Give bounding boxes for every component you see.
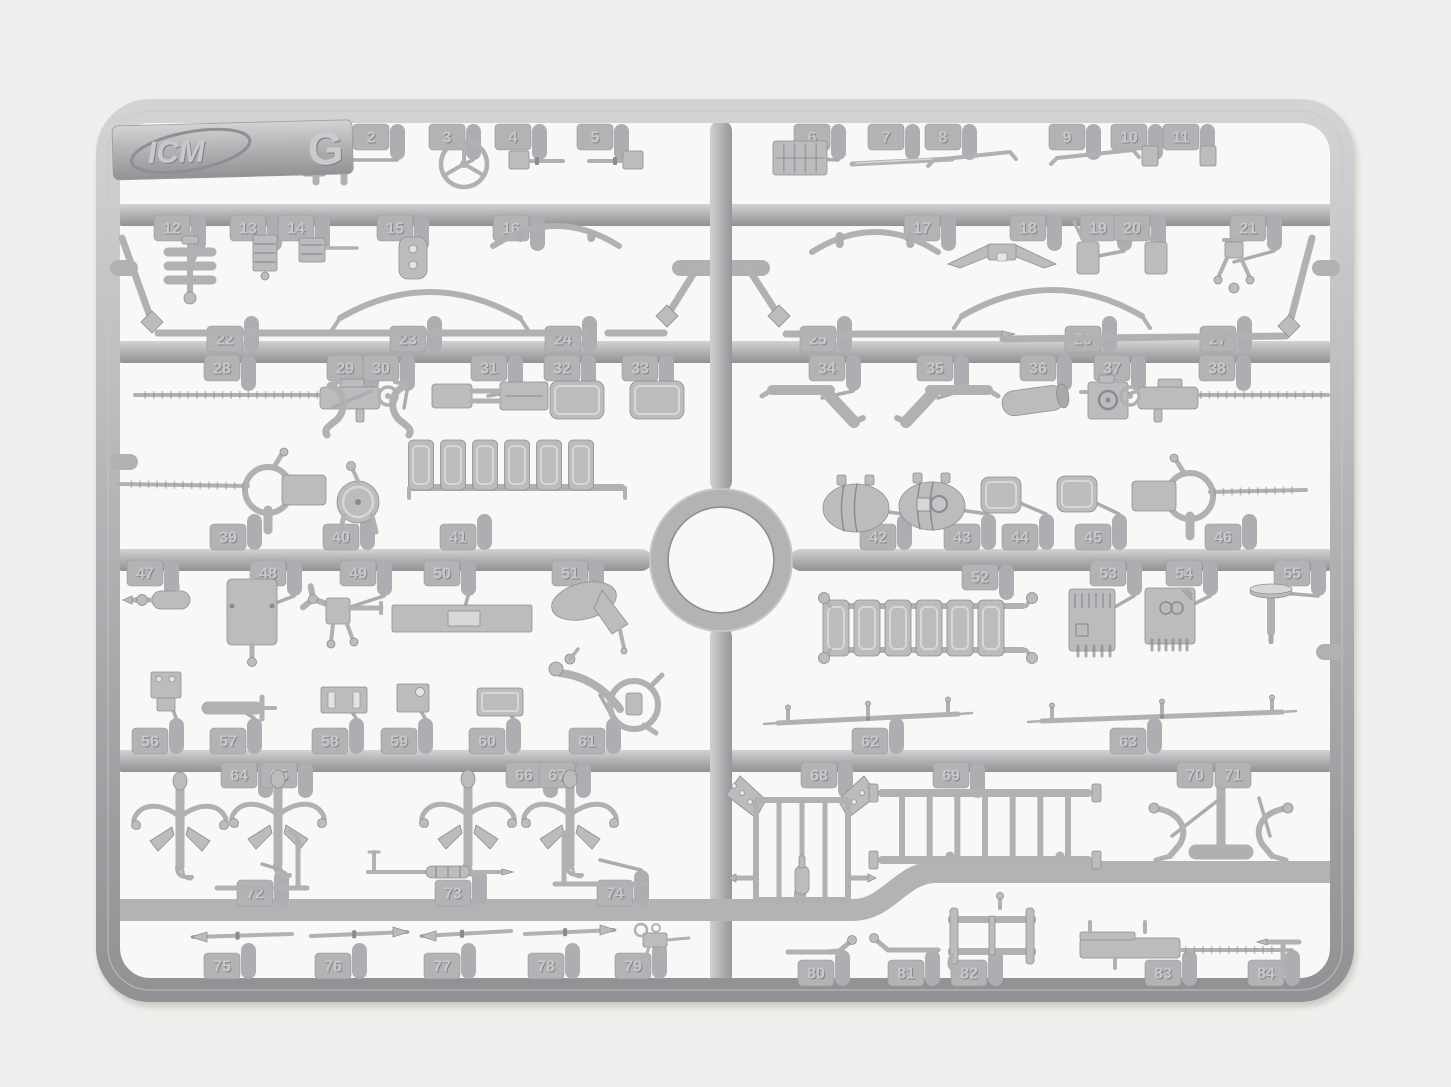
photo-stage: 1122334455667788991010111112121313141415…: [0, 0, 1451, 1087]
part-41: [409, 440, 626, 498]
part-number: 66: [515, 768, 533, 785]
part-33: [630, 381, 684, 419]
part-number: 82: [960, 966, 978, 983]
part-number: 14: [287, 221, 305, 238]
part-number: 78: [537, 959, 555, 976]
part-number: 73: [444, 886, 462, 903]
part-number: 56: [141, 734, 159, 751]
part-number: 53: [1099, 566, 1117, 583]
part-number: 18: [1019, 221, 1037, 238]
part-number: 81: [897, 966, 915, 983]
part-number: 83: [1154, 966, 1172, 983]
part-number: 28: [213, 361, 231, 378]
part-number: 52: [971, 570, 989, 587]
part-number: 46: [1214, 530, 1232, 547]
part-number: 57: [219, 734, 237, 751]
part-number: 9: [1063, 130, 1072, 147]
part-number: 70: [1186, 768, 1204, 785]
part-tab-70: 7070: [1177, 762, 1213, 788]
part-number: 60: [478, 734, 496, 751]
part-number: 5: [591, 130, 600, 147]
sprue-group: 1122334455667788991010111112121313141415…: [108, 111, 1344, 990]
part-number: 76: [324, 959, 342, 976]
part-number: 59: [390, 734, 408, 751]
part-number: 20: [1123, 221, 1141, 238]
part-number: 74: [606, 886, 624, 903]
part-number: 54: [1175, 566, 1193, 583]
part-number: 51: [561, 566, 579, 583]
part-number: 21: [1239, 221, 1257, 238]
part-number: 80: [807, 966, 825, 983]
part-number: 43: [953, 530, 971, 547]
part-15: [399, 237, 427, 279]
part-number: 79: [624, 959, 642, 976]
part-number: 44: [1011, 530, 1029, 547]
part-number: 35: [926, 361, 944, 378]
part-number: 11: [1173, 130, 1190, 147]
part-number: 31: [480, 361, 498, 378]
part-number: 58: [321, 734, 339, 751]
part-number: 77: [433, 959, 451, 976]
part-tab-71: 7171: [1215, 762, 1251, 788]
part-number: 19: [1089, 221, 1107, 238]
part-10: [1142, 146, 1158, 166]
part-number: 38: [1208, 361, 1226, 378]
part-number: 4: [509, 130, 518, 147]
part-number: 34: [818, 361, 836, 378]
part-number: 41: [449, 530, 467, 547]
part-number: 42: [869, 530, 887, 547]
part-number: 2: [367, 130, 376, 147]
part-number: 12: [163, 221, 181, 238]
part-number: 29: [336, 361, 354, 378]
part-number: 75: [213, 959, 231, 976]
part-number: 32: [553, 361, 571, 378]
part-number: 47: [136, 566, 154, 583]
part-number: 63: [1119, 734, 1137, 751]
part-number: 39: [219, 530, 237, 547]
part-number: 45: [1084, 530, 1102, 547]
part-69: [869, 784, 1101, 869]
part-number: 55: [1283, 566, 1301, 583]
part-number: 36: [1029, 361, 1047, 378]
part-number: 8: [939, 130, 948, 147]
part-number: 64: [230, 768, 248, 785]
part-number: 68: [810, 768, 828, 785]
part-number: 15: [386, 221, 404, 238]
sprue-photo: 1122334455667788991010111112121313141415…: [0, 0, 1451, 1087]
part-number: 30: [372, 361, 390, 378]
sprue-letter: G: [307, 122, 344, 175]
part-number: 7: [882, 130, 891, 147]
icm-logo-tab: ICM ICM G G: [112, 119, 353, 182]
part-number: 71: [1224, 768, 1242, 785]
part-60: [477, 688, 523, 718]
part-number: 69: [942, 768, 960, 785]
part-58: [321, 687, 367, 718]
part-number: 62: [861, 734, 879, 751]
part-number: 61: [578, 734, 596, 751]
part-number: 50: [433, 566, 451, 583]
brand-text: ICM: [147, 134, 206, 171]
part-11: [1200, 146, 1216, 166]
part-number: 33: [631, 361, 649, 378]
part-number: 84: [1257, 966, 1275, 983]
part-number: 10: [1120, 130, 1138, 147]
part-32: [550, 381, 604, 419]
part-number: 17: [913, 221, 931, 238]
part-number: 49: [349, 566, 367, 583]
